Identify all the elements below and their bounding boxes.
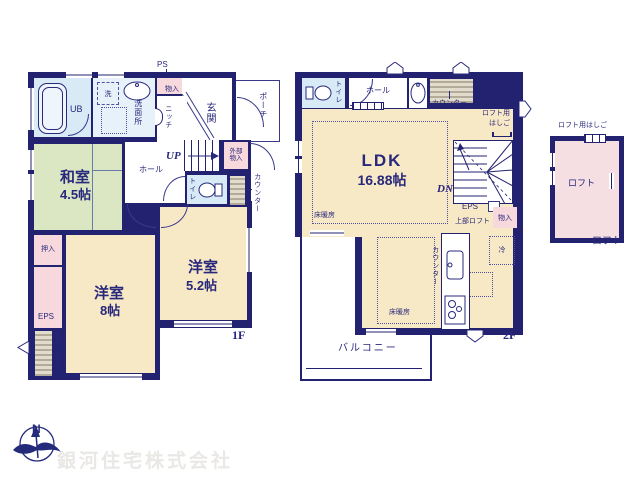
roof-vent-icon [452, 62, 470, 75]
window [28, 174, 34, 200]
closet: 押入 [34, 235, 62, 265]
window [295, 159, 302, 173]
counter-left-hatch [34, 330, 53, 377]
hall-step-mark [352, 102, 384, 110]
niche-label: ニッチ [164, 105, 172, 129]
stairs-1f [184, 140, 220, 171]
fridge-box: 冷 [489, 236, 515, 265]
ext-storage-label-2: 物入 [224, 155, 248, 162]
washbasin-2f-icon [409, 80, 427, 106]
window [98, 72, 124, 78]
washer-icon: 洗 [97, 82, 119, 105]
window [246, 228, 252, 272]
window [174, 321, 232, 327]
storage-top-label: 物入 [165, 86, 179, 93]
tatami-line-h [92, 170, 122, 171]
window [609, 173, 614, 189]
door-vent-icon [466, 330, 484, 343]
toilet-1f-icon [198, 180, 224, 200]
japanese-room-size: 4.5帖 [60, 188, 91, 202]
kitchen-counter-label: カウンター [431, 246, 439, 286]
loft-ladder-label-2: はしご [489, 120, 510, 128]
counter-2f-top-label: カウンター [432, 100, 467, 108]
kitchen-sink-icon [445, 249, 465, 281]
storage-2f-label: 物入 [498, 215, 512, 222]
closet-label: 押入 [41, 246, 55, 253]
floor-heating-label-1: 床暖房 [314, 212, 335, 220]
loft-ladder-mark [492, 132, 512, 137]
window [310, 230, 344, 236]
balcony-rail-line [306, 368, 422, 369]
toilet-counter-hatch [229, 175, 246, 206]
toilet-2f-label: トイレ [334, 80, 342, 104]
porch-label: ポーチ [258, 92, 267, 119]
window [28, 88, 34, 130]
window [295, 141, 302, 156]
stove-icon [444, 295, 466, 325]
window [550, 153, 555, 167]
loft-ladder-top-label: ロフト用はしご [558, 122, 607, 130]
counter-left-label: カウンター [53, 332, 61, 372]
loft-room [550, 136, 624, 243]
loft-room-label: ロフト [568, 179, 595, 189]
counter-2f-tick [449, 91, 450, 99]
window [28, 150, 34, 170]
floor-heating-zone-1 [312, 121, 448, 224]
window [550, 171, 555, 185]
kitchen-dotted-zone [467, 272, 493, 297]
toilet-2f-icon [305, 82, 333, 104]
fridge-label: 冷 [499, 247, 506, 254]
eps-2f-label: EPS [462, 203, 478, 212]
side-vent-icon [519, 100, 532, 118]
bathtub-icon [38, 83, 67, 134]
ext-storage: 外部 物入 [224, 142, 248, 169]
ps-top-tick [166, 69, 167, 74]
washer-label: 洗 [105, 91, 112, 98]
floor-2-label: 2F [503, 329, 516, 342]
stairs-1f-arrow [184, 140, 220, 171]
toilet-1f-label: トイレ [188, 177, 196, 201]
tatami-line-v [92, 144, 93, 230]
floor-plan-page: ポーチ UB 洗 洗面所 物入 PS [0, 0, 640, 480]
washroom-label: 洗面所 [133, 99, 142, 126]
vent-left-icon [17, 340, 30, 355]
west-room-52-label: 洋室 [188, 260, 218, 277]
west-room-8-label: 洋室 [94, 286, 124, 303]
stairs-2f [453, 140, 513, 204]
storage-2f: 物入 [493, 207, 517, 228]
ext-door-arc [250, 143, 275, 170]
window [80, 374, 142, 380]
counter-right-label: カウンター [253, 173, 261, 213]
loft-floor-label: ロフト [592, 236, 622, 247]
counter-right-tick [245, 189, 252, 190]
entrance-label: 玄関 [204, 102, 215, 124]
window [66, 72, 92, 78]
loft-ladder-label-1: ロフト用 [482, 110, 510, 118]
eps-1f-label: EPS [38, 313, 54, 322]
balcony-label: バルコニー [338, 343, 398, 354]
hall-1f-label: ホール [139, 166, 163, 175]
loft-ladder-mark [584, 134, 606, 143]
company-name: 銀河住宅株式会社 [57, 446, 233, 473]
floor-1-label: 1F [232, 329, 245, 342]
upper-loft-label: 上部ロフト [455, 218, 490, 226]
japanese-room-label: 和室 [60, 170, 90, 187]
roof-vent-icon [386, 62, 404, 75]
window [366, 329, 396, 335]
west-room-8-size: 8帖 [100, 304, 120, 318]
washroom-mat [101, 107, 127, 134]
west-room-52-size: 5.2帖 [186, 279, 217, 293]
compass-icon: N [10, 412, 64, 472]
hall-2f-label: ホール [366, 87, 390, 96]
up-label: UP [166, 150, 181, 162]
floor-heating-label-2: 床暖房 [389, 309, 410, 317]
